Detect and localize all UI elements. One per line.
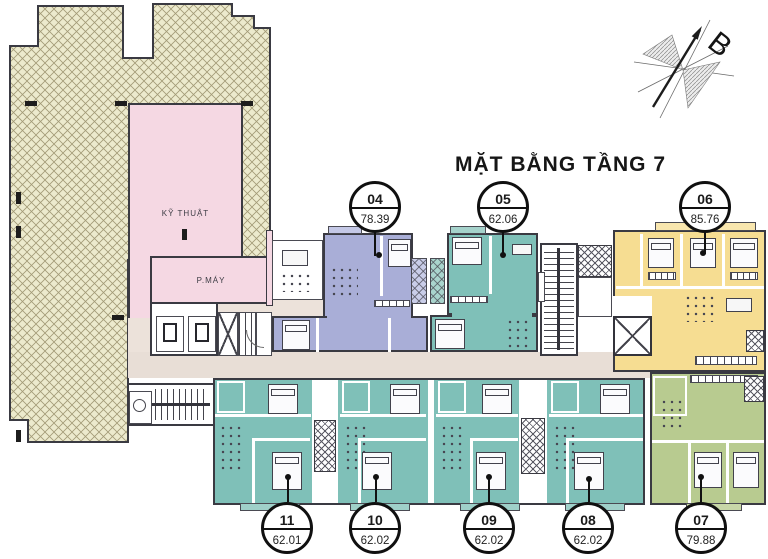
shaft-hatched bbox=[746, 330, 764, 352]
elevator-door-icon bbox=[163, 323, 177, 342]
chairs bbox=[280, 272, 312, 292]
bed bbox=[482, 384, 512, 414]
bathroom bbox=[342, 381, 370, 413]
chairs bbox=[684, 294, 714, 322]
partition bbox=[436, 414, 518, 417]
leader-dot bbox=[486, 474, 492, 480]
arrowhead-icon bbox=[692, 26, 702, 40]
dimension-tick bbox=[16, 226, 21, 238]
leader-dot bbox=[376, 252, 382, 258]
partition bbox=[549, 414, 643, 417]
shaft-hatched bbox=[744, 376, 764, 402]
unit-area: 78.39 bbox=[352, 209, 398, 230]
unit-06-notch bbox=[613, 296, 652, 316]
partition bbox=[489, 236, 492, 294]
unit-badge-04[interactable]: 04 78.39 bbox=[349, 181, 401, 233]
shaft-x bbox=[218, 312, 238, 356]
technical-strip bbox=[128, 256, 152, 318]
partition bbox=[616, 286, 764, 289]
bed bbox=[476, 452, 506, 490]
shaft-hatched bbox=[521, 418, 545, 474]
bathroom bbox=[551, 381, 579, 413]
leader-line bbox=[375, 478, 377, 502]
leader-dot bbox=[698, 474, 704, 480]
partition bbox=[252, 438, 255, 503]
chairs bbox=[219, 424, 243, 470]
wardrobe bbox=[730, 272, 758, 280]
partition bbox=[566, 438, 569, 503]
north-label: B bbox=[702, 26, 738, 64]
sofa bbox=[726, 298, 752, 312]
dimension-tick bbox=[16, 192, 21, 204]
leader-line bbox=[488, 478, 490, 502]
bed bbox=[600, 384, 630, 414]
chairs bbox=[440, 424, 464, 470]
unit-badge-10[interactable]: 10 62.02 bbox=[349, 502, 401, 554]
unit-number: 09 bbox=[466, 505, 512, 530]
partition bbox=[316, 318, 319, 352]
elevator-door-icon bbox=[195, 323, 209, 342]
unit-number: 08 bbox=[565, 505, 611, 530]
unit-badge-11[interactable]: 11 62.01 bbox=[261, 502, 313, 554]
elevator-car bbox=[188, 316, 216, 352]
shaft-hatched bbox=[430, 258, 445, 304]
partition bbox=[380, 236, 383, 296]
leader-dot bbox=[285, 474, 291, 480]
unit-divider bbox=[428, 380, 434, 503]
leader-dot bbox=[700, 250, 706, 256]
leader-dot bbox=[373, 474, 379, 480]
bed bbox=[648, 238, 674, 268]
bed bbox=[388, 239, 411, 267]
wardrobe bbox=[512, 244, 532, 255]
leader-line bbox=[588, 480, 590, 502]
partition bbox=[688, 443, 691, 503]
unit-number: 10 bbox=[352, 505, 398, 530]
bed bbox=[730, 238, 758, 268]
dimension-tick bbox=[16, 430, 21, 442]
unit-badge-06[interactable]: 06 85.76 bbox=[679, 181, 731, 233]
unit-badge-08[interactable]: 08 62.02 bbox=[562, 502, 614, 554]
unit-badge-05[interactable]: 05 62.06 bbox=[477, 181, 529, 233]
unit-area: 62.01 bbox=[264, 530, 310, 551]
dimension-tick bbox=[25, 101, 37, 106]
service-room bbox=[578, 277, 612, 317]
unit-area: 62.02 bbox=[352, 530, 398, 551]
elevator-car bbox=[156, 316, 184, 352]
unit-area: 62.02 bbox=[565, 530, 611, 551]
stair-rail bbox=[557, 248, 560, 350]
chairs bbox=[506, 318, 532, 348]
partition bbox=[358, 438, 361, 503]
leader-dot bbox=[500, 252, 506, 258]
leader-line bbox=[287, 478, 289, 502]
partition bbox=[215, 414, 311, 417]
technical-room-label: KỸ THUẬT bbox=[130, 209, 241, 218]
unit-number: 06 bbox=[682, 184, 728, 209]
chairs bbox=[660, 398, 686, 428]
wardrobe bbox=[648, 272, 676, 280]
partition bbox=[388, 318, 391, 352]
partition bbox=[722, 234, 725, 286]
leader-line bbox=[700, 478, 702, 502]
unit-area: 79.88 bbox=[678, 530, 724, 551]
partition bbox=[652, 440, 764, 443]
dimension-tick bbox=[115, 101, 127, 106]
compass-wing bbox=[643, 35, 683, 70]
partition bbox=[640, 234, 643, 286]
shaft-hatched bbox=[411, 258, 427, 304]
partition bbox=[470, 438, 518, 441]
stair-rail bbox=[150, 403, 210, 406]
unit-number: 05 bbox=[480, 184, 526, 209]
partition bbox=[252, 438, 310, 441]
bed bbox=[390, 384, 420, 414]
floor-plan: KỸ THUẬT P.MÁY bbox=[0, 0, 768, 559]
compass-wing bbox=[683, 62, 720, 108]
shaft-hatched bbox=[578, 245, 612, 277]
technical-room: KỸ THUẬT bbox=[128, 103, 243, 258]
kitchen-counter bbox=[374, 300, 410, 307]
unit-number: 07 bbox=[678, 505, 724, 530]
unit-04-join bbox=[327, 314, 411, 322]
unit-badge-09[interactable]: 09 62.02 bbox=[463, 502, 515, 554]
partition bbox=[726, 443, 729, 503]
unit-area: 85.76 bbox=[682, 209, 728, 230]
bathroom bbox=[438, 381, 466, 413]
machine-room-label: P.MÁY bbox=[197, 276, 226, 285]
bed bbox=[362, 452, 392, 490]
bed bbox=[452, 237, 482, 265]
unit-number: 11 bbox=[264, 505, 310, 530]
chairs bbox=[330, 266, 358, 296]
unit-area: 62.06 bbox=[480, 209, 526, 230]
leader-dot bbox=[586, 476, 592, 482]
dimension-tick bbox=[112, 315, 124, 320]
partition bbox=[340, 414, 426, 417]
bed bbox=[282, 320, 310, 350]
unit-number: 04 bbox=[352, 184, 398, 209]
partition bbox=[470, 438, 473, 503]
machine-room: P.MÁY bbox=[150, 256, 272, 304]
page-title: MẶT BẰNG TẦNG 7 bbox=[455, 153, 666, 177]
dimension-tick bbox=[241, 101, 253, 106]
partition bbox=[680, 234, 683, 286]
bed bbox=[694, 452, 722, 488]
kitchen-counter bbox=[695, 356, 757, 365]
kitchen-counter bbox=[450, 296, 488, 303]
bathroom bbox=[217, 381, 245, 413]
unit-area: 62.02 bbox=[466, 530, 512, 551]
unit-badge-07[interactable]: 07 79.88 bbox=[675, 502, 727, 554]
fixture-circle bbox=[133, 399, 146, 412]
shaft-hatched bbox=[314, 420, 336, 472]
bed bbox=[435, 319, 465, 349]
partition bbox=[566, 438, 643, 441]
bed bbox=[733, 452, 759, 488]
elevator-shaft-x bbox=[613, 316, 652, 356]
bed bbox=[268, 384, 298, 414]
ledge bbox=[538, 272, 545, 302]
table bbox=[282, 250, 308, 266]
partition bbox=[358, 438, 426, 441]
duct-marker bbox=[182, 229, 187, 240]
north-arrow: B bbox=[628, 10, 743, 125]
